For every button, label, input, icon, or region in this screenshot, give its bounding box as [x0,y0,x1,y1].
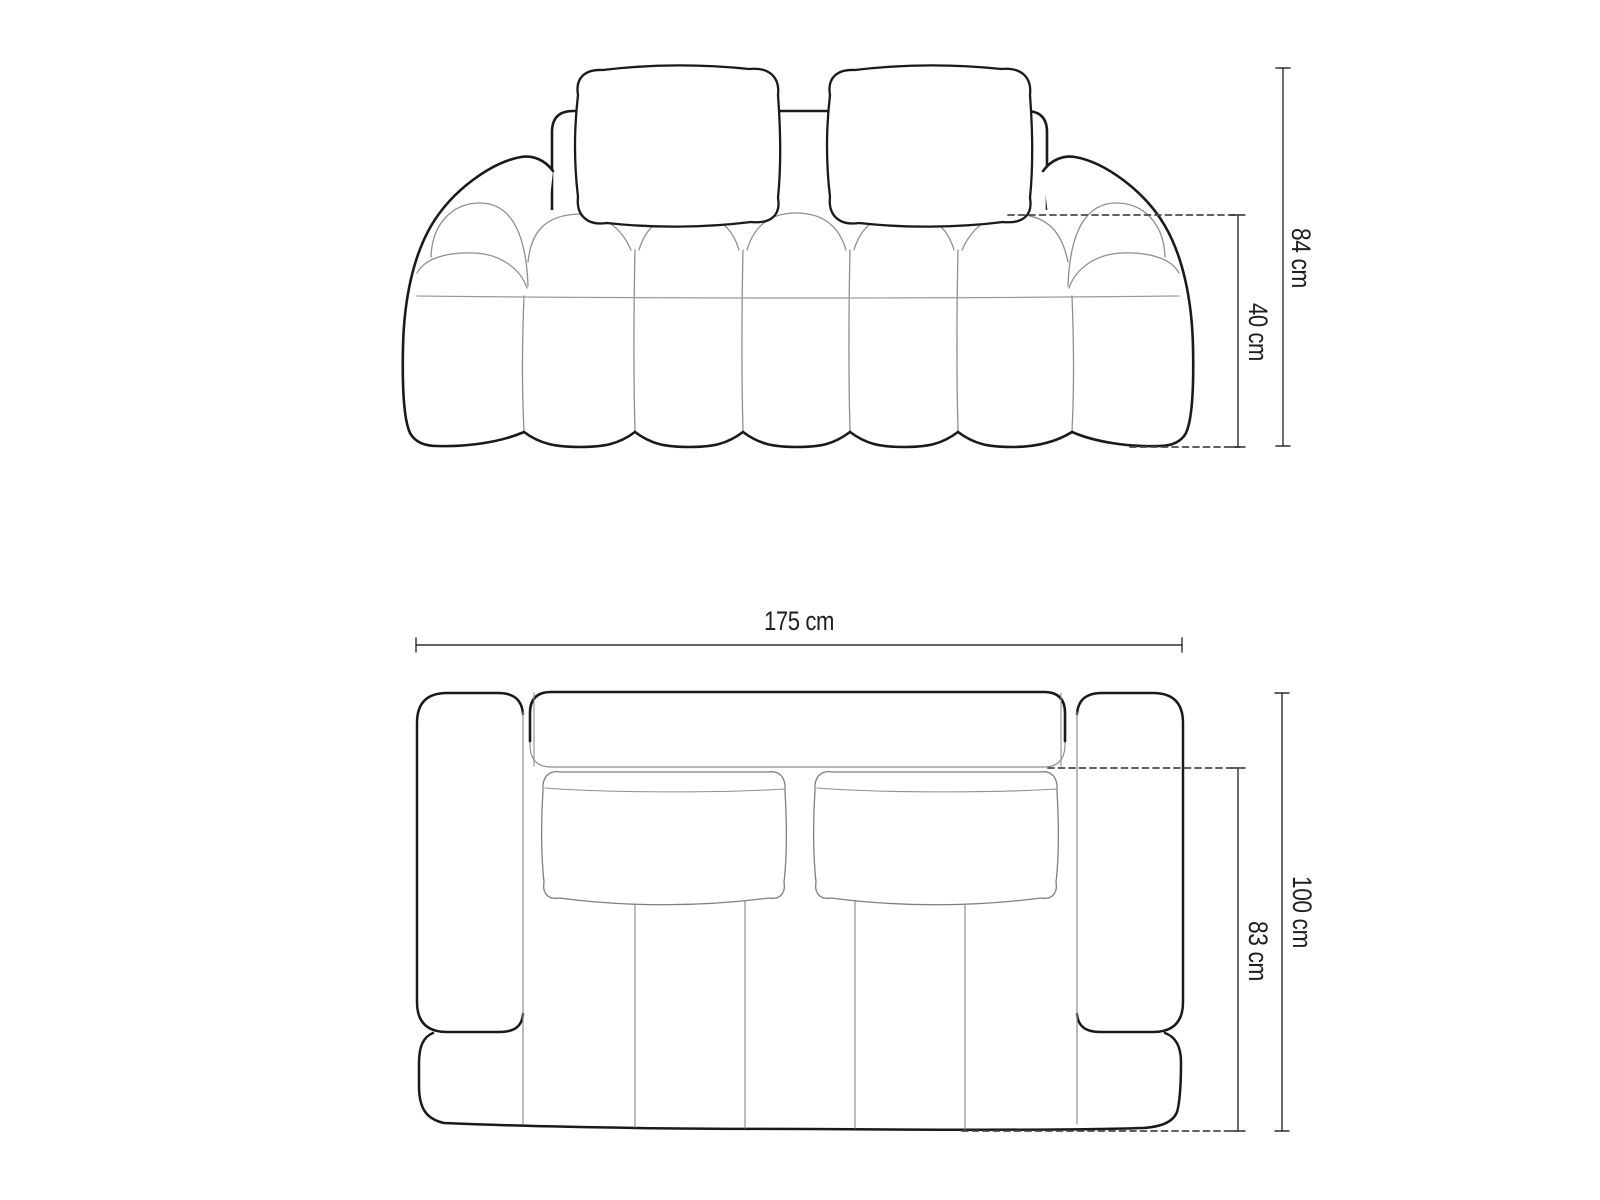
plan-seat-depth-label: 83 cm [1243,921,1273,981]
front-right-pillow [827,65,1032,226]
front-overall-height-label: 84 cm [1286,228,1316,288]
sofa-dimension-diagram: 84 cm 40 cm [0,0,1600,1200]
front-left-pillow [575,65,780,226]
top-view [417,692,1183,1130]
plan-overall-depth-label: 100 cm [1287,876,1317,948]
plan-channel-seams [635,899,965,1129]
front-seat-body [524,210,1072,442]
plan-left-arm [417,693,523,1032]
plan-right-arm [1077,693,1183,1032]
plan-backrest [530,692,1065,767]
front-seat-height-label: 40 cm [1243,303,1273,361]
plan-front-band [419,1033,1181,1130]
plan-overall-width-label: 175 cm [764,606,834,636]
front-view [403,65,1193,447]
